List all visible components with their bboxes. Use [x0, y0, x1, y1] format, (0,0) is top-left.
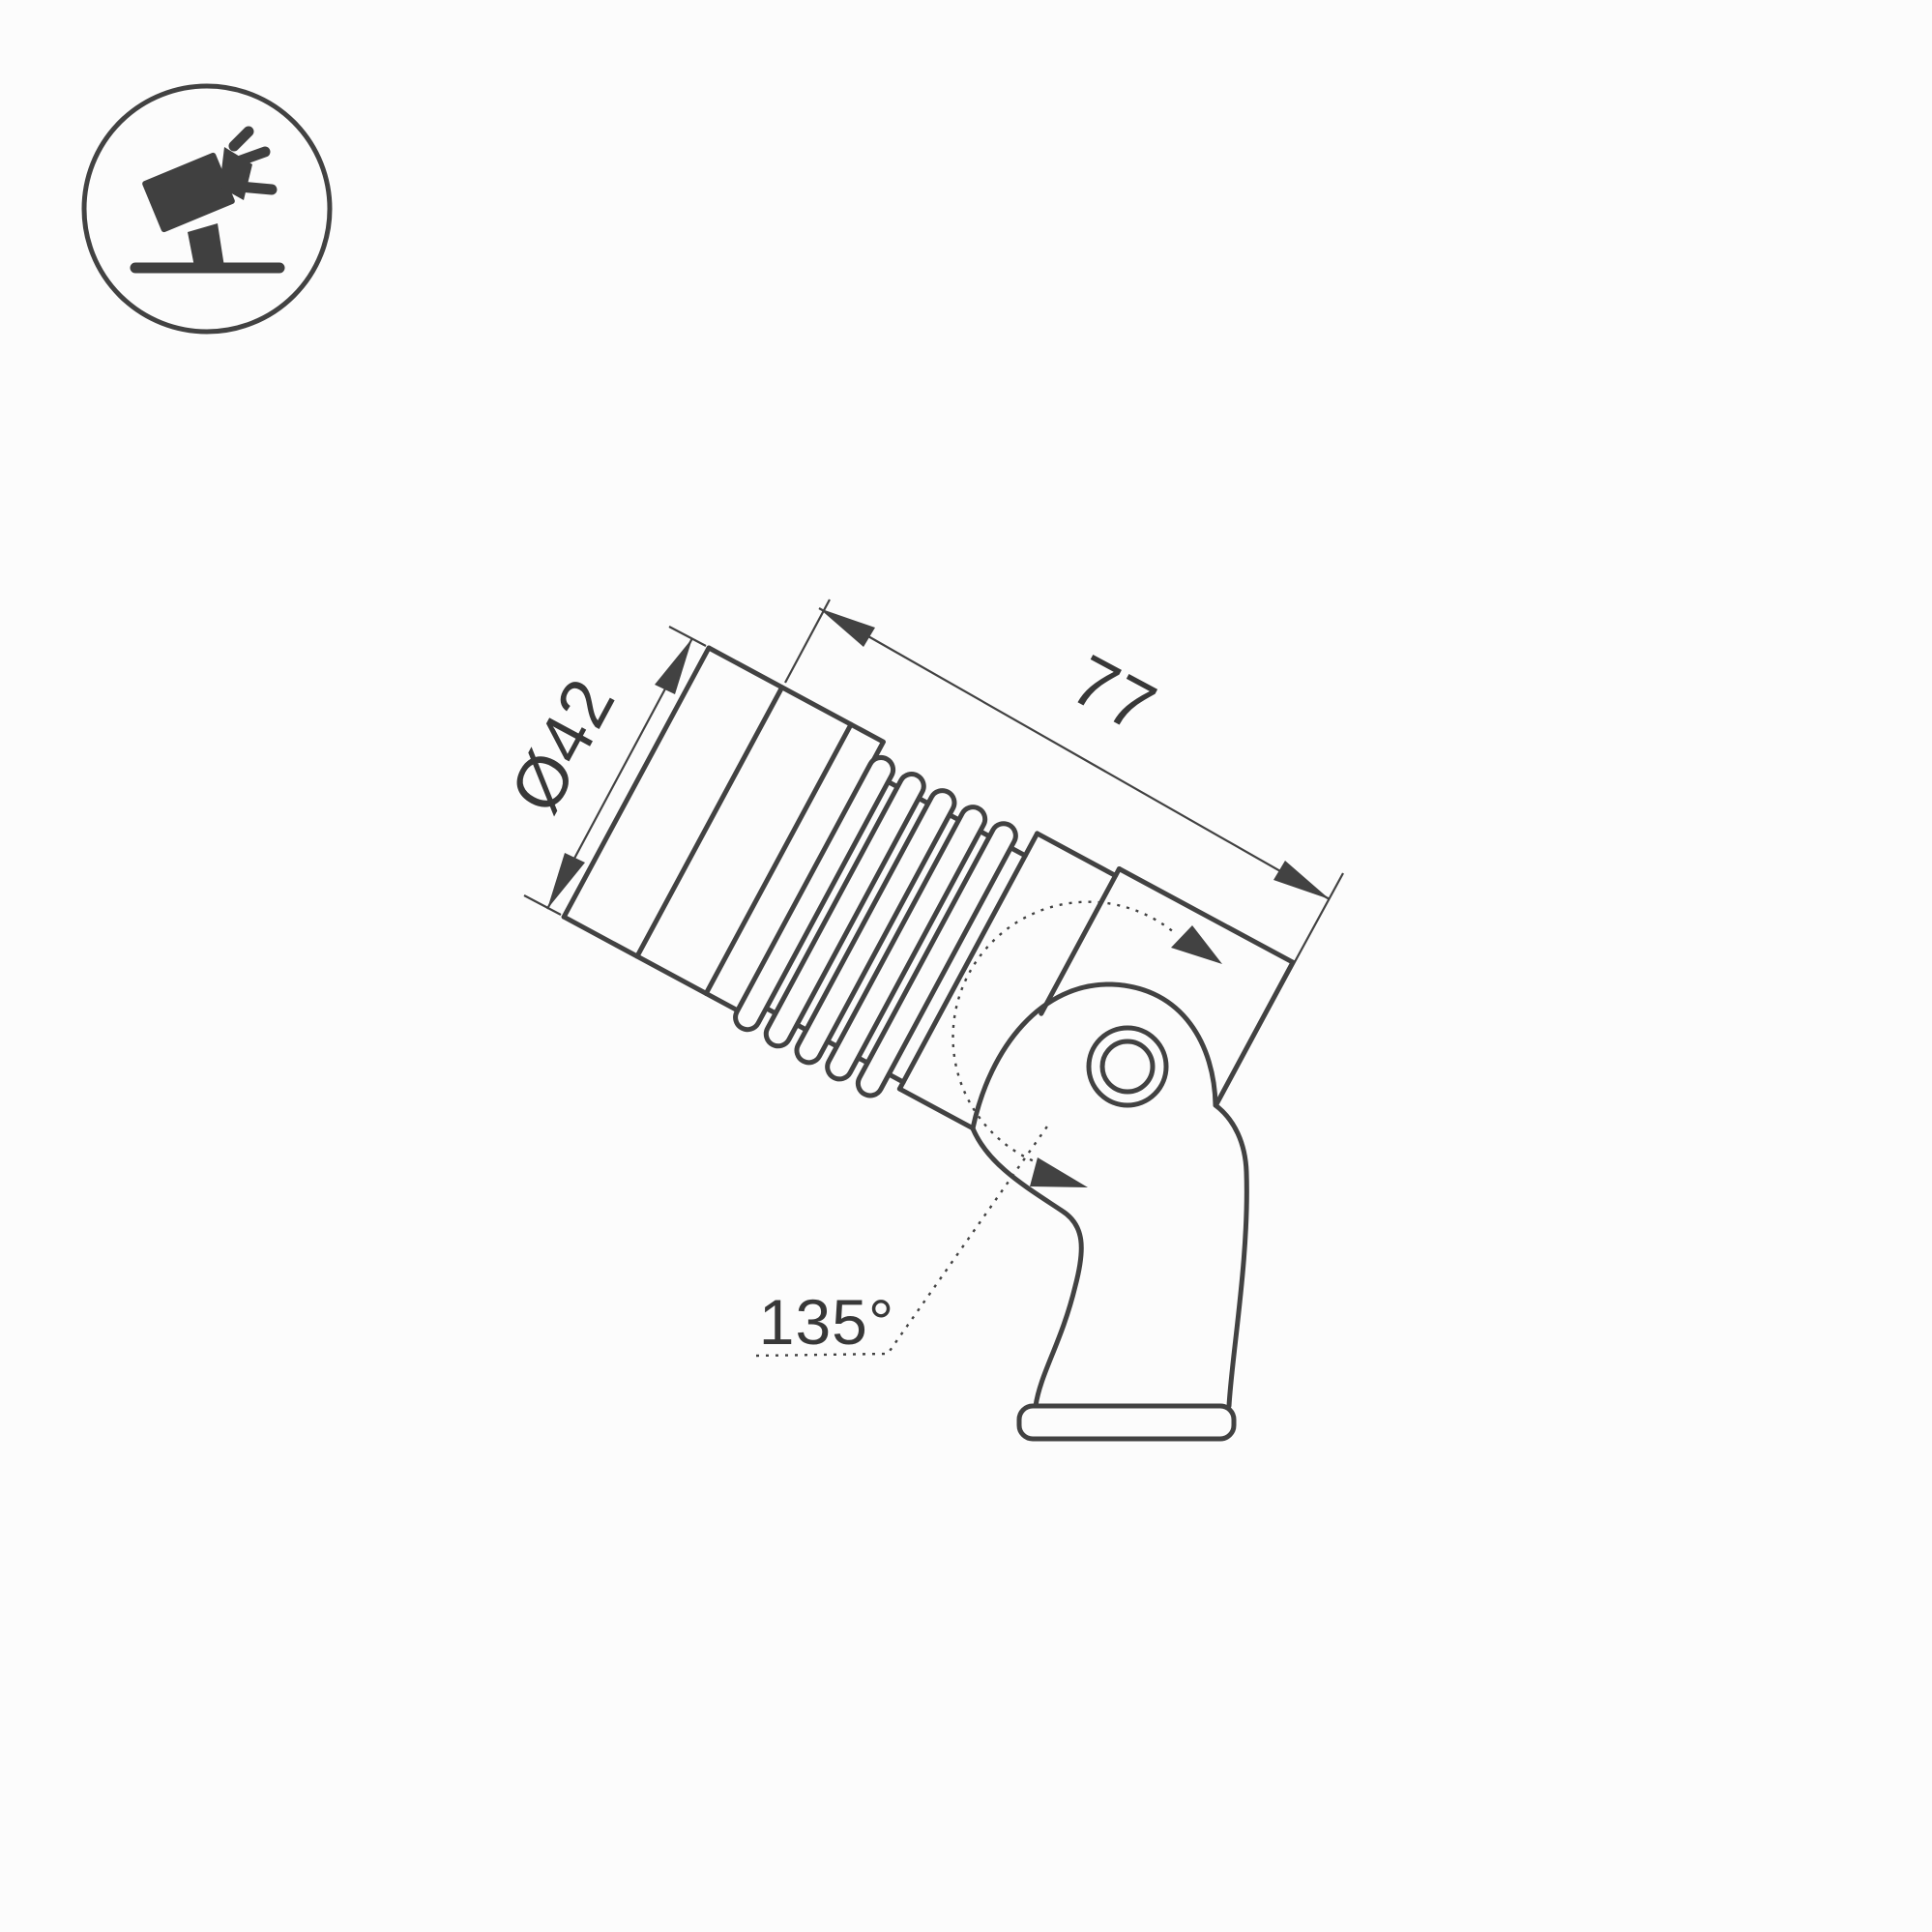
diameter-dimension: Ø42: [494, 627, 706, 915]
diameter-label: Ø42: [494, 665, 630, 825]
bezel-boundary: [637, 688, 782, 956]
bracket-arm-left-edge: [973, 1128, 1081, 1406]
arc-arrow-upper-icon: [1171, 925, 1222, 964]
cooling-fins: [731, 753, 1020, 1099]
bracket-foot: [1019, 1406, 1234, 1439]
spotlight-icon: [84, 86, 330, 332]
housing-cap-boundary: [1041, 869, 1120, 1014]
dia-arrow-bottom-icon: [547, 853, 585, 909]
len-extension-line-left: [785, 600, 830, 683]
housing-top-edge: [1038, 834, 1116, 876]
bracket-knuckle: [973, 984, 1215, 1128]
mounting-bracket: [973, 984, 1246, 1439]
arc-arrow-lower-icon: [1030, 1157, 1088, 1187]
len-arrow-left-icon: [819, 608, 875, 647]
angle-label: 135°: [759, 1286, 895, 1358]
bracket-arm-right-edge: [1215, 1105, 1246, 1406]
canvas: Ø42 77 135°: [0, 0, 1932, 1932]
housing-bottom-edge: [899, 1089, 973, 1128]
dia-extension-line-top: [669, 627, 706, 646]
pivot-inner-circle: [1102, 1041, 1153, 1092]
technical-drawing: Ø42 77 135°: [0, 0, 1932, 1932]
len-extension-line-right: [1220, 873, 1343, 1098]
length-label: 77: [1059, 639, 1169, 748]
len-arrow-right-icon: [1273, 861, 1330, 899]
